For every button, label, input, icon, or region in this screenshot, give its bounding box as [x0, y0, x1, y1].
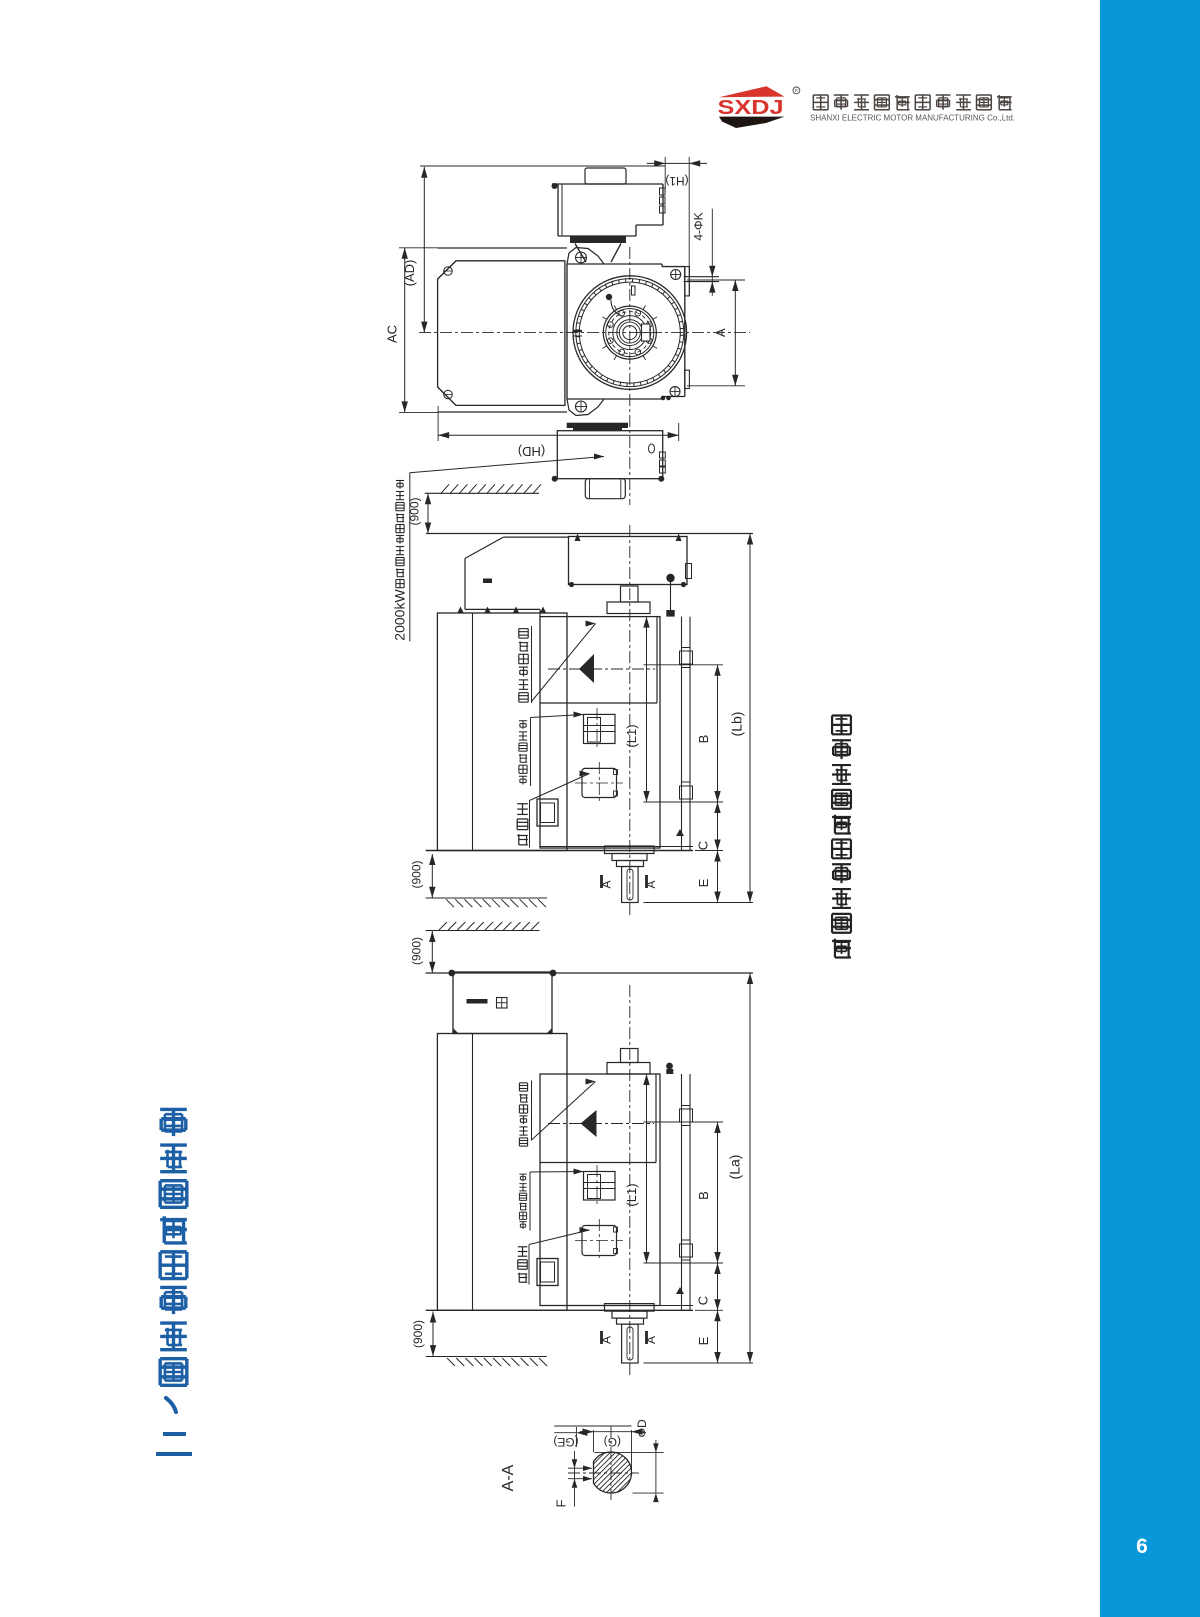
- svg-text:SHANXI ELECTRIC MOTOR MANUFACT: SHANXI ELECTRIC MOTOR MANUFACTURING Co.,…: [810, 114, 1015, 123]
- svg-text:(L1): (L1): [624, 1183, 639, 1206]
- svg-text:(900): (900): [410, 937, 424, 965]
- svg-text:A-A: A-A: [500, 1464, 517, 1491]
- svg-text:C: C: [696, 1296, 711, 1305]
- svg-text:C: C: [696, 841, 711, 850]
- svg-text:A: A: [600, 880, 614, 888]
- svg-text:(900): (900): [411, 1320, 425, 1348]
- svg-text:F: F: [554, 1499, 569, 1507]
- svg-text:SXDJ: SXDJ: [718, 97, 784, 119]
- svg-text:(900): (900): [410, 860, 424, 888]
- svg-text:E: E: [696, 1336, 711, 1345]
- svg-text:A: A: [600, 1336, 614, 1344]
- svg-text:AC: AC: [385, 325, 400, 343]
- svg-text:(G): (G): [604, 1435, 621, 1449]
- svg-text:(H1): (H1): [665, 174, 688, 188]
- svg-text:(L1): (L1): [624, 724, 639, 747]
- svg-text:(GE): (GE): [553, 1435, 578, 1449]
- svg-text:(HD): (HD): [518, 444, 545, 459]
- svg-text:E: E: [696, 878, 711, 887]
- svg-text:B: B: [696, 735, 711, 744]
- svg-text:(Lb): (Lb): [729, 712, 745, 737]
- svg-text:A: A: [644, 880, 658, 888]
- svg-text:A: A: [644, 1336, 658, 1344]
- svg-text:2000kW: 2000kW: [392, 589, 408, 641]
- svg-text:4-ΦK: 4-ΦK: [692, 212, 706, 240]
- svg-text:A: A: [713, 328, 728, 337]
- svg-text:(La): (La): [727, 1155, 743, 1180]
- svg-text:R: R: [795, 88, 799, 93]
- svg-text:B: B: [696, 1191, 711, 1200]
- svg-text:ΦD: ΦD: [635, 1419, 649, 1438]
- svg-text:(900): (900): [408, 497, 422, 525]
